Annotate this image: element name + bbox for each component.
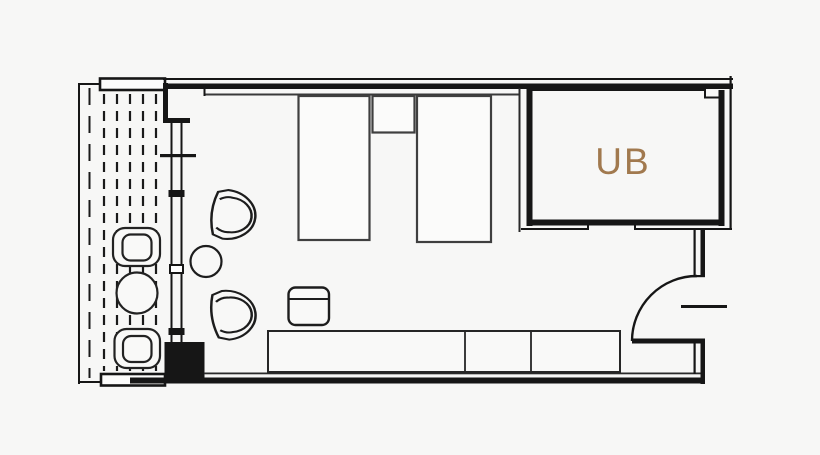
ub-door-jamb-tick bbox=[634, 223, 636, 230]
window-pier-left bbox=[163, 83, 168, 123]
window-sash-node bbox=[169, 190, 185, 197]
balcony-chair-cushion bbox=[123, 336, 152, 362]
entrance-wall-inner-upper bbox=[694, 228, 696, 277]
entrance-wall-outer-upper bbox=[701, 228, 706, 277]
lounge-chair-lower bbox=[208, 288, 259, 341]
bed bbox=[417, 96, 491, 242]
balcony-left-edge bbox=[78, 83, 80, 384]
floor-plan: UB bbox=[0, 0, 820, 455]
ub-wall-bottom bbox=[527, 220, 725, 226]
ub-room-label: UB bbox=[595, 141, 650, 182]
entrance-wall-outer-lower bbox=[701, 339, 706, 384]
ub-wall-right-outer-line bbox=[730, 76, 732, 230]
balcony-top-edge bbox=[78, 83, 102, 85]
stool bbox=[289, 288, 330, 326]
bedroom-ub-divider-line bbox=[519, 88, 521, 232]
ub-bottom-outer-line-right bbox=[635, 228, 732, 230]
top-wall-inner-line bbox=[163, 84, 733, 90]
entrance bbox=[632, 228, 727, 384]
counter-desk bbox=[268, 331, 620, 372]
entrance-door-swing-arc bbox=[632, 276, 697, 341]
ub-bottom-outer-line-left bbox=[521, 228, 588, 230]
top-wall-outer-line bbox=[163, 78, 733, 80]
beds-group bbox=[299, 96, 492, 242]
ub-wall-left bbox=[527, 88, 533, 226]
balcony-chair-cushion bbox=[123, 235, 152, 261]
balcony-wall-cap-top bbox=[100, 79, 165, 91]
stool-outline bbox=[289, 288, 330, 326]
balcony bbox=[78, 79, 165, 386]
entrance-threshold-tick bbox=[681, 305, 727, 308]
window-sash-node bbox=[169, 328, 185, 335]
entrance-wall-inner-lower bbox=[694, 339, 696, 374]
ub-corner-notch-horizontal bbox=[704, 97, 720, 99]
bottom-wall-outer-line bbox=[130, 378, 705, 384]
bed bbox=[299, 96, 370, 240]
window-sash-node-hollow bbox=[170, 265, 183, 273]
window-pier-bottom bbox=[163, 118, 190, 123]
counter-outline bbox=[268, 331, 620, 372]
ub-door-jamb-tick bbox=[587, 223, 589, 230]
ub-wall-right bbox=[719, 90, 725, 226]
unit-bath-room: UB bbox=[521, 76, 732, 230]
entrance-door-leaf bbox=[632, 339, 705, 344]
ub-wall-top-inner-line bbox=[532, 89, 705, 91]
lounge-chair-upper bbox=[209, 188, 258, 242]
floor-plan-canvas: UB bbox=[0, 0, 820, 455]
window-tick-mark bbox=[160, 154, 196, 157]
wall-post-bottom-left bbox=[165, 342, 205, 383]
bedroom-furniture bbox=[191, 96, 621, 372]
side-table bbox=[191, 246, 222, 277]
nightstand bbox=[373, 96, 415, 133]
balcony-furniture bbox=[113, 228, 160, 368]
balcony-round-table bbox=[117, 273, 158, 314]
window-pier-right-line bbox=[204, 84, 206, 96]
